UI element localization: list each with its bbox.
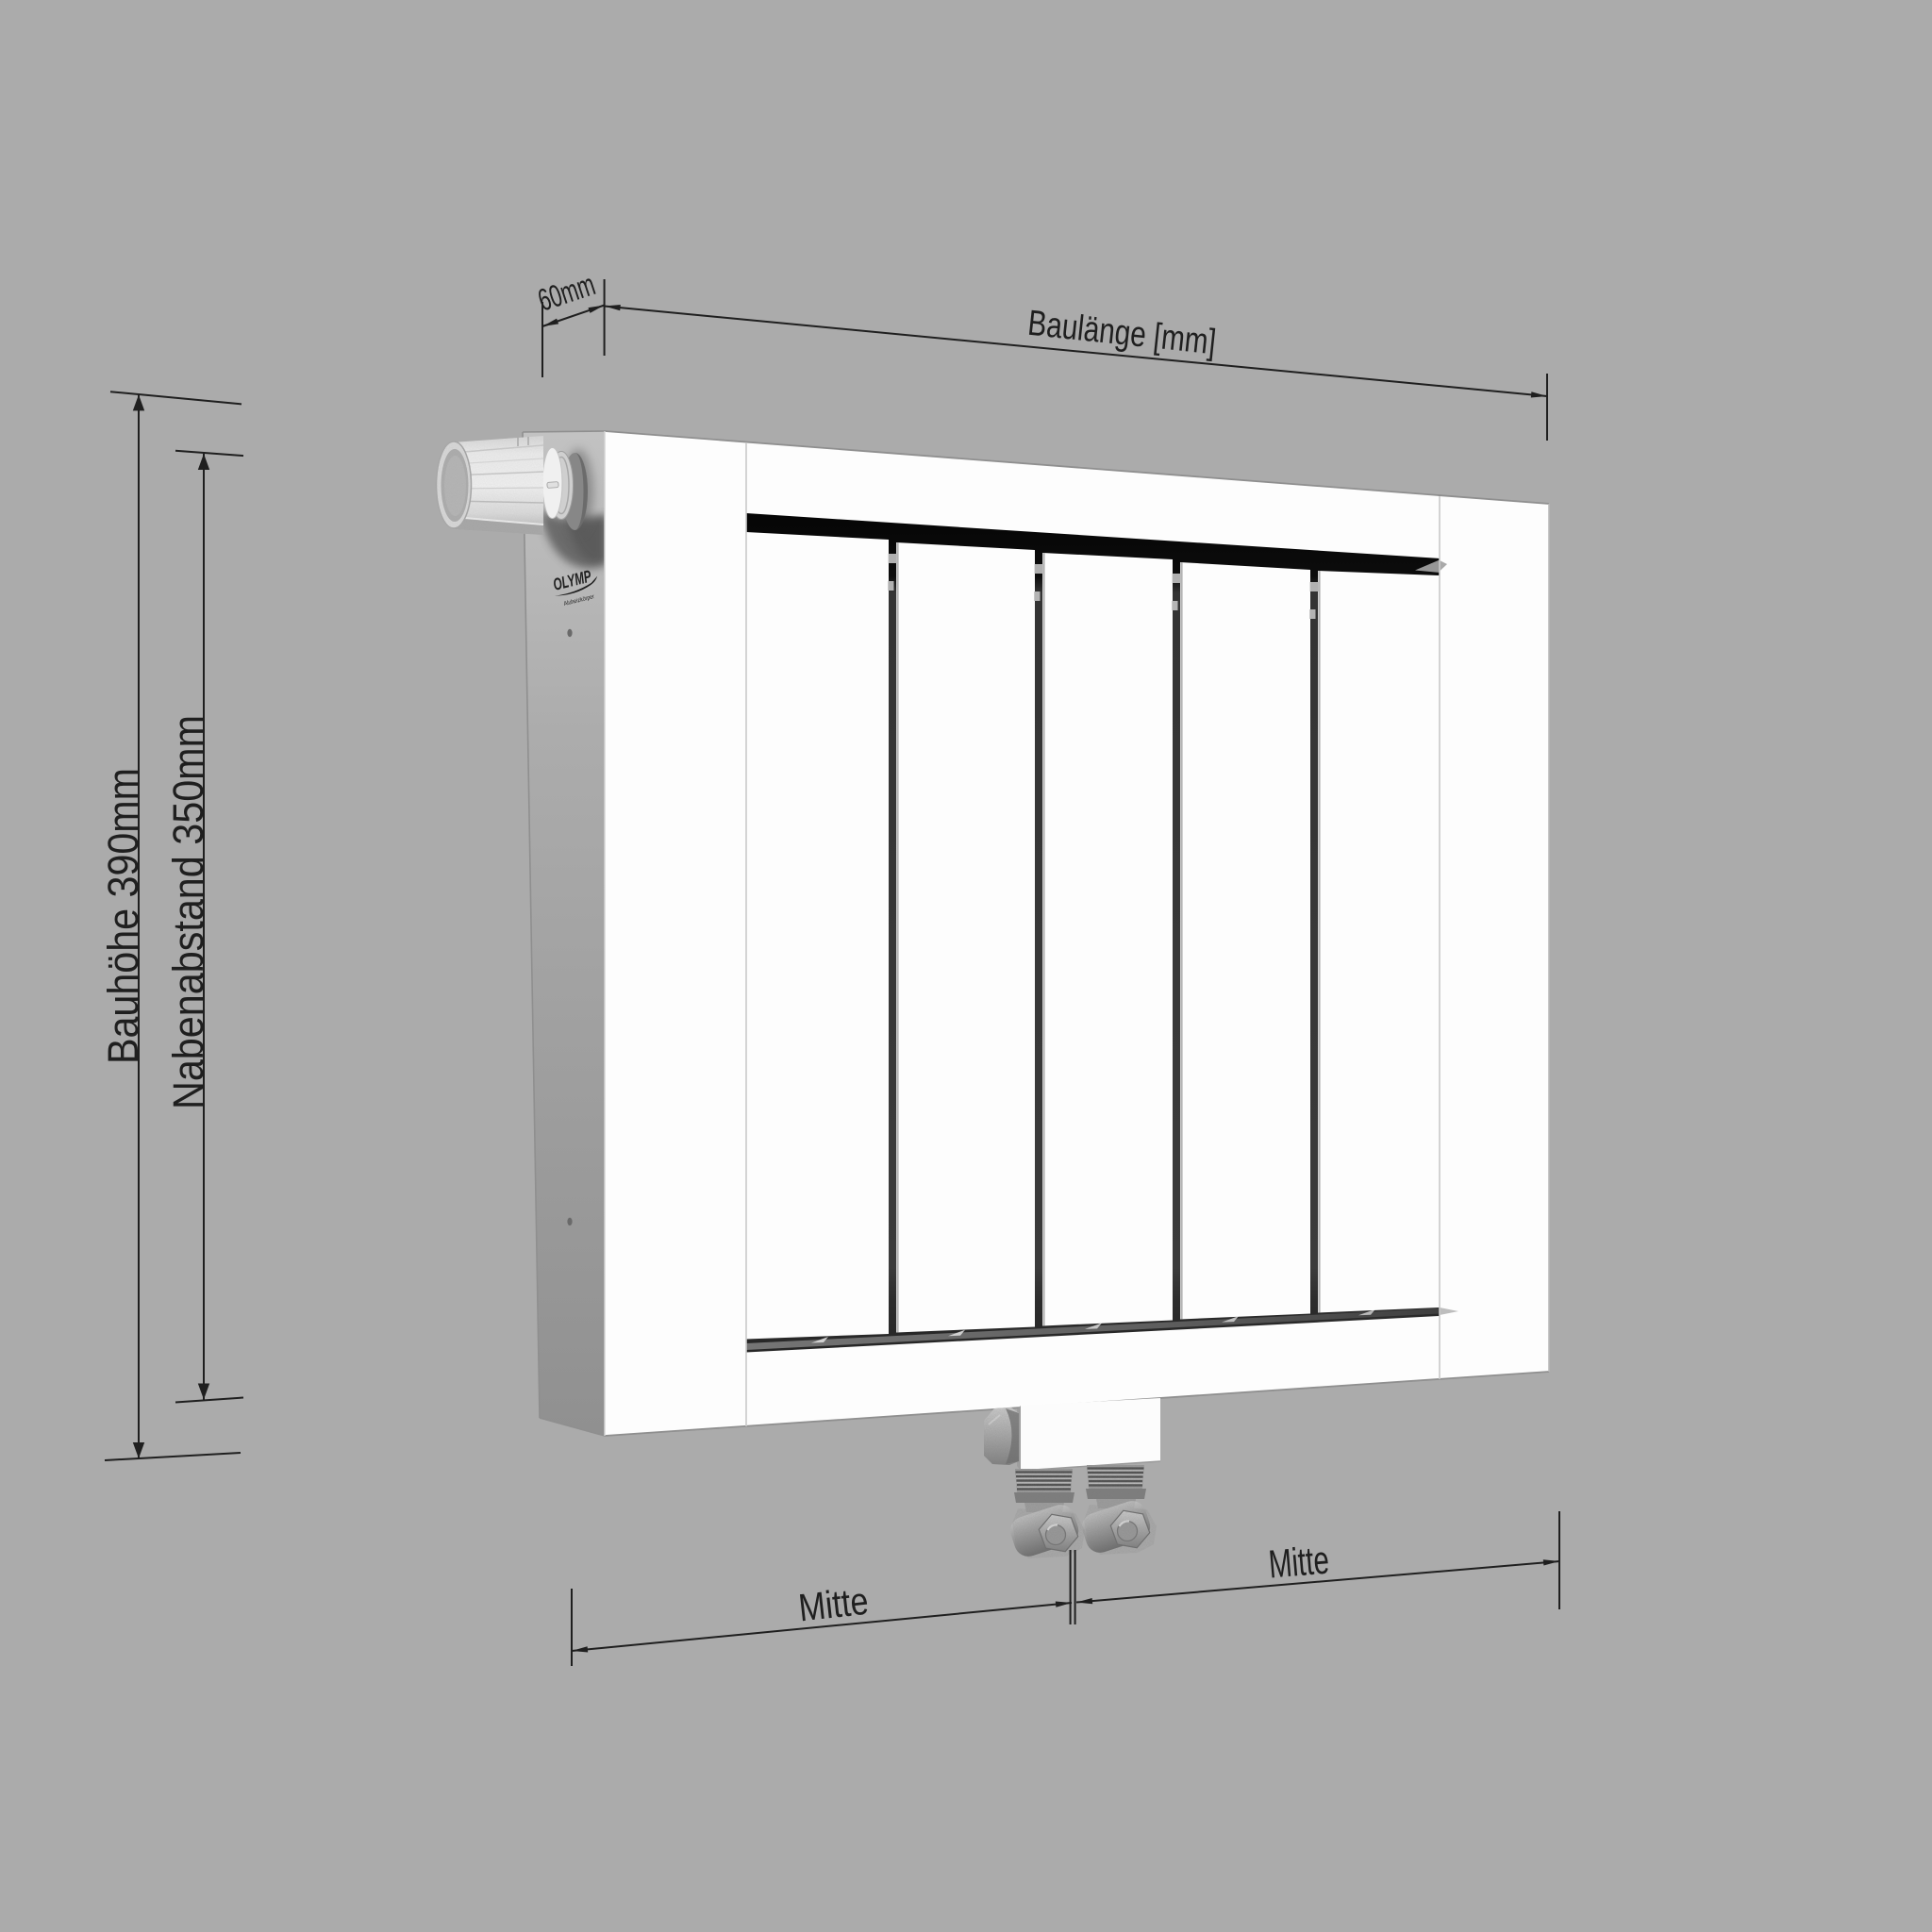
svg-text:Bauhöhe 390mm: Bauhöhe 390mm <box>99 768 147 1064</box>
svg-text:Mitte: Mitte <box>1267 1537 1331 1586</box>
svg-text:Mitte: Mitte <box>796 1579 871 1630</box>
svg-text:Nabenabstand 350mm: Nabenabstand 350mm <box>164 715 212 1109</box>
